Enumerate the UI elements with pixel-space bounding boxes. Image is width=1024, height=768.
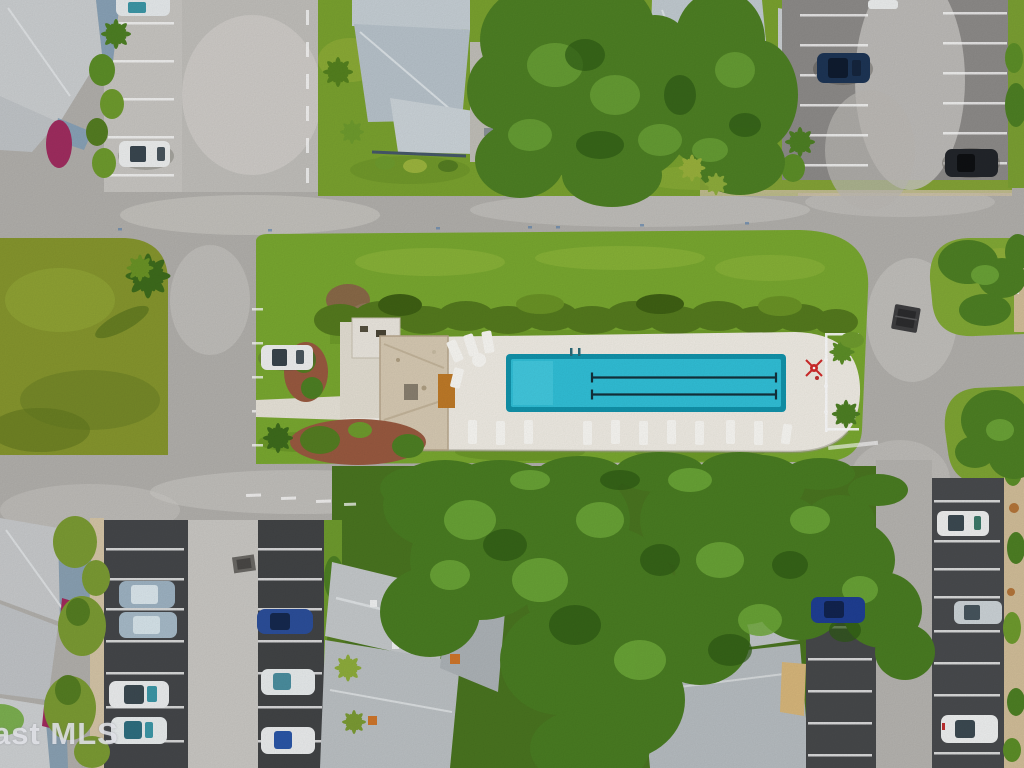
- photo-grain: [0, 0, 1024, 768]
- aerial-scene: [0, 0, 1024, 768]
- aerial-photo: ast MLS: [0, 0, 1024, 768]
- watermark: ast MLS: [0, 716, 119, 752]
